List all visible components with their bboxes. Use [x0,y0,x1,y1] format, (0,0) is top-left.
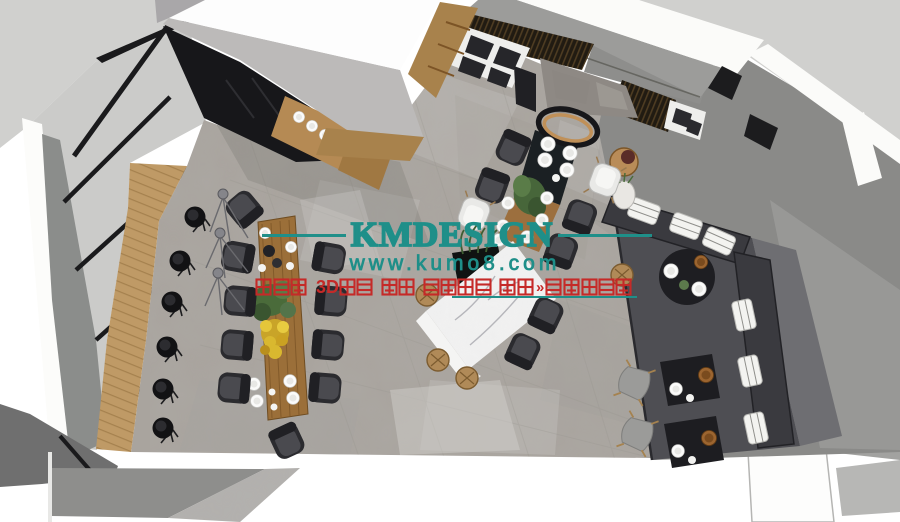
svg-text:»: » [536,279,544,296]
svg-text:KMDESIGN: KMDESIGN [351,215,553,254]
svg-text:www.kumo8.com: www.kumo8.com [349,252,561,275]
svg-text:3D: 3D [316,277,339,297]
